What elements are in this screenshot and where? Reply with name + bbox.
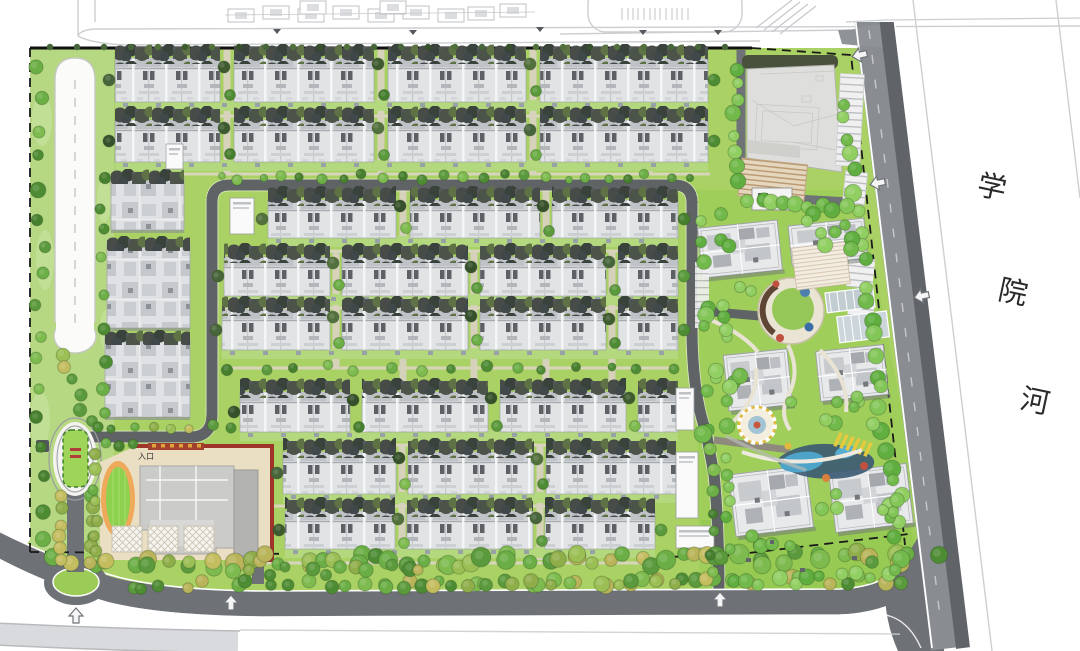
svg-text:入口: 入口: [138, 452, 154, 461]
